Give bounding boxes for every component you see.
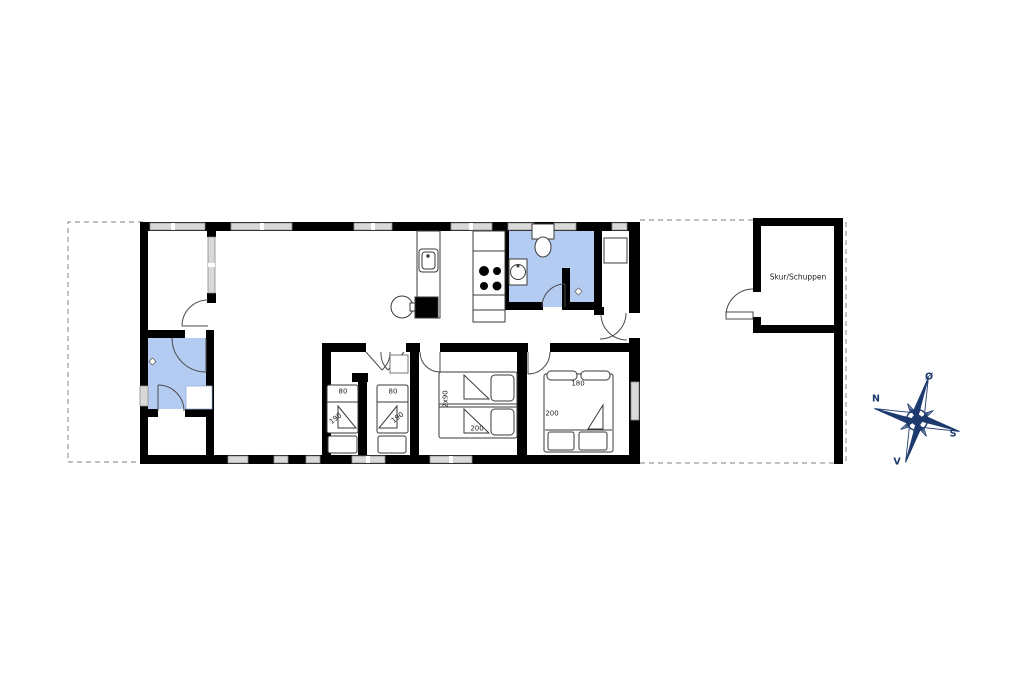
shower-icon — [186, 386, 212, 409]
bed-bench — [579, 432, 607, 450]
bed1-width-label: 80 — [339, 389, 348, 396]
compass-east-label: Ø — [925, 372, 933, 382]
nightstand — [328, 436, 357, 453]
shed-label: Skur/Schuppen — [770, 273, 827, 281]
compass-north-label: N — [872, 394, 880, 404]
bed4-length-label: 200 — [545, 411, 558, 418]
wardrobe — [390, 355, 408, 373]
compass-south-label: S — [950, 429, 957, 439]
nightstand — [378, 436, 406, 453]
bed3-length-label: 200 — [470, 426, 483, 433]
utility-closet — [604, 238, 627, 263]
compass-rose-icon — [863, 366, 971, 474]
shed-door — [726, 289, 753, 319]
shed-walls — [753, 218, 843, 464]
bedroom-furniture — [327, 355, 613, 453]
kitchen — [391, 231, 505, 322]
floor-plan-page: 80 190 80 190 2x90 200 180 200 Skur/Schu… — [0, 0, 1024, 682]
wood-stove-icon — [391, 296, 438, 318]
bed-bench — [548, 432, 574, 450]
compass-ring — [901, 404, 933, 436]
bed4-width-label: 180 — [571, 381, 584, 388]
bed2-width-label: 80 — [389, 389, 398, 396]
compass-west-label: V — [893, 457, 900, 467]
bed3-width-label: 2x90 — [443, 390, 450, 408]
floor-plan-drawing — [0, 0, 1024, 682]
kitchen-counter-right — [473, 231, 505, 322]
washbasin-icon — [509, 259, 527, 285]
kitchen-sink-icon — [419, 249, 438, 272]
